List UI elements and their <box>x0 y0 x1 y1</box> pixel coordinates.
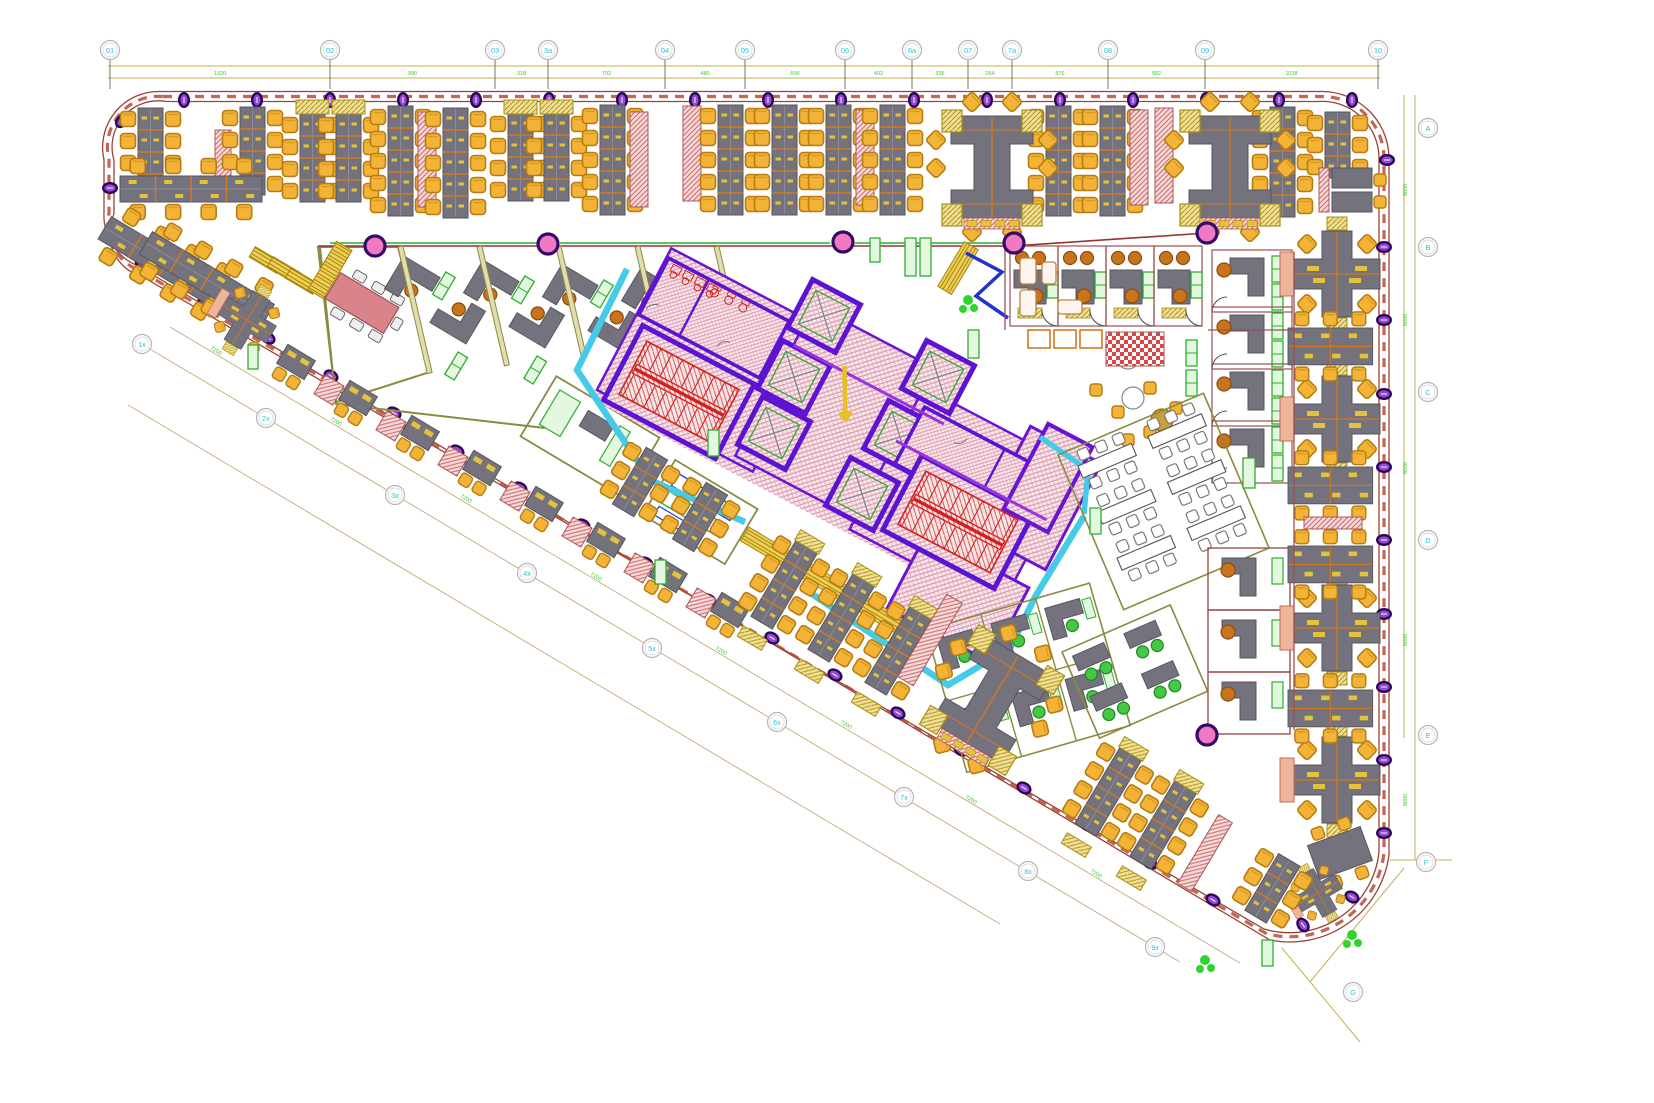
svg-text:6x: 6x <box>773 720 781 727</box>
svg-text:480: 480 <box>700 71 709 77</box>
svg-text:03: 03 <box>491 46 499 55</box>
svg-text:9x: 9x <box>1151 945 1159 952</box>
svg-text:09: 09 <box>1201 46 1209 55</box>
svg-text:07: 07 <box>964 46 972 55</box>
svg-text:8000: 8000 <box>1403 314 1409 326</box>
svg-text:A: A <box>1425 124 1430 133</box>
svg-text:B: B <box>1425 243 1430 252</box>
svg-text:4x: 4x <box>523 571 531 578</box>
svg-text:3x: 3x <box>391 493 399 500</box>
svg-text:D: D <box>1425 536 1431 545</box>
svg-text:G: G <box>1350 988 1356 997</box>
svg-text:702: 702 <box>602 71 611 77</box>
svg-text:264: 264 <box>985 71 994 77</box>
svg-text:8000: 8000 <box>1403 634 1409 646</box>
svg-text:08: 08 <box>1104 46 1112 55</box>
svg-text:336: 336 <box>935 71 944 77</box>
svg-text:2x: 2x <box>262 416 270 423</box>
svg-text:990: 990 <box>408 71 417 77</box>
svg-text:1038: 1038 <box>1285 71 1297 77</box>
svg-text:7x: 7x <box>900 795 908 802</box>
svg-text:576: 576 <box>1055 71 1064 77</box>
svg-text:10: 10 <box>1374 46 1382 55</box>
svg-text:02: 02 <box>326 46 334 55</box>
svg-text:C: C <box>1425 388 1431 397</box>
svg-text:05: 05 <box>741 46 749 55</box>
svg-text:8000: 8000 <box>1403 794 1409 806</box>
svg-text:7a: 7a <box>1008 46 1017 55</box>
svg-text:06: 06 <box>841 46 849 55</box>
svg-text:1320: 1320 <box>214 71 226 77</box>
svg-text:1x: 1x <box>138 342 146 349</box>
svg-text:402: 402 <box>874 71 883 77</box>
svg-text:E: E <box>1425 731 1430 740</box>
svg-text:318: 318 <box>517 71 526 77</box>
svg-text:F: F <box>1424 858 1429 867</box>
svg-text:6a: 6a <box>908 46 917 55</box>
svg-text:5x: 5x <box>648 646 656 653</box>
svg-text:8000: 8000 <box>1403 462 1409 474</box>
svg-text:600: 600 <box>790 71 799 77</box>
svg-text:04: 04 <box>661 46 669 55</box>
svg-text:01: 01 <box>106 46 114 55</box>
svg-text:8000: 8000 <box>1403 184 1409 196</box>
svg-text:3a: 3a <box>544 46 553 55</box>
svg-text:582: 582 <box>1152 71 1161 77</box>
svg-text:8x: 8x <box>1024 869 1032 876</box>
